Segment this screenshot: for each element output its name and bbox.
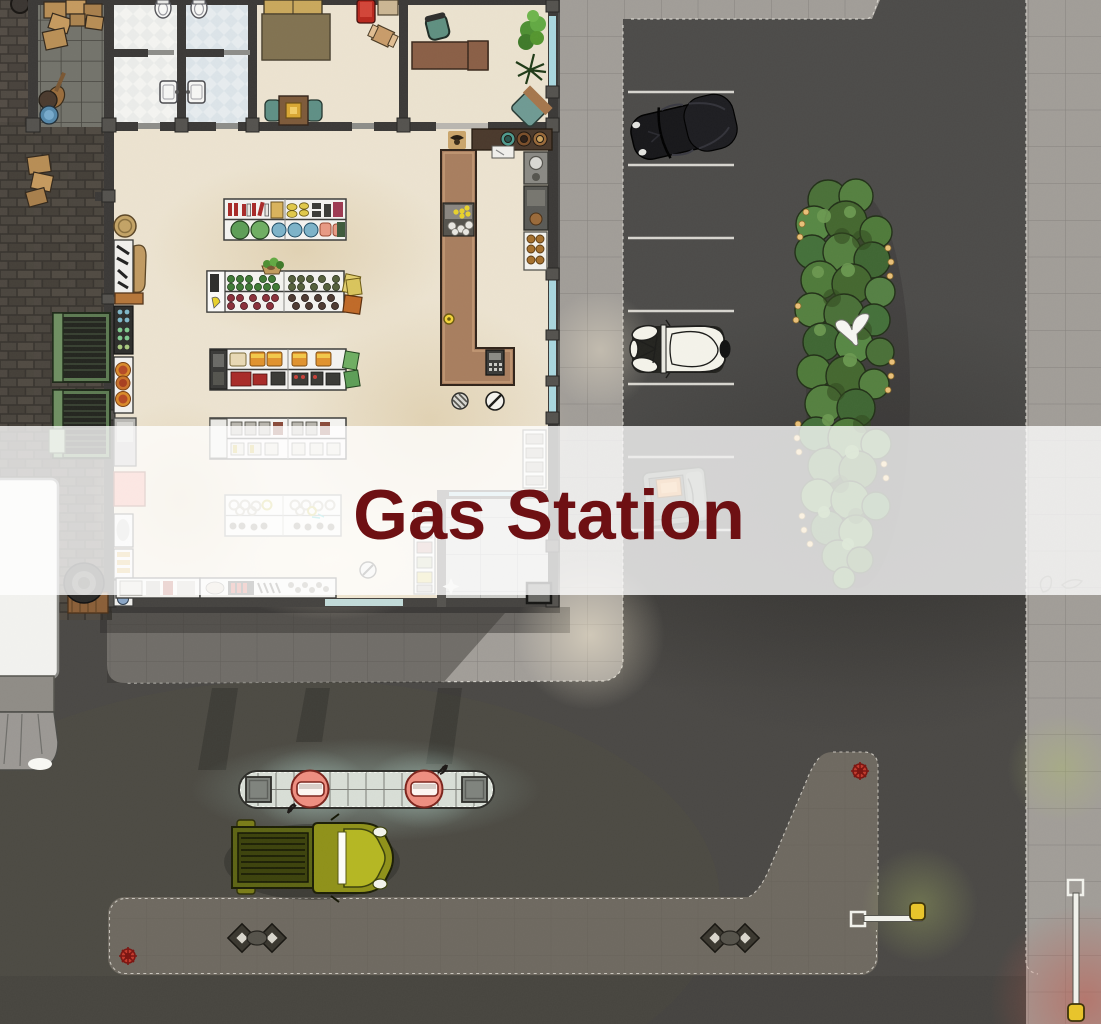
svg-text:Gas Station: Gas Station: [353, 475, 745, 554]
